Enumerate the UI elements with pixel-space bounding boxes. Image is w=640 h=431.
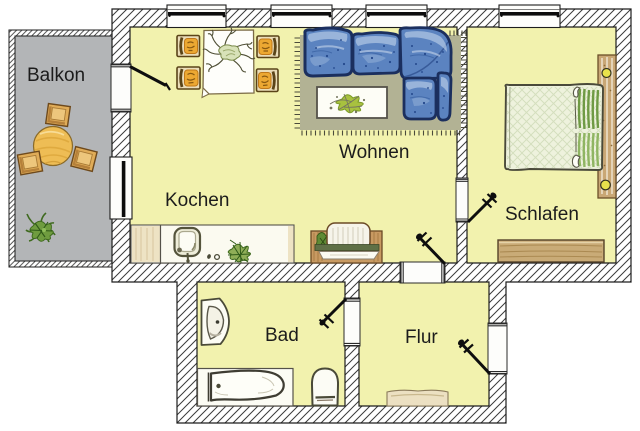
svg-text:Wohnen: Wohnen (339, 142, 409, 163)
svg-text:Kochen: Kochen (165, 190, 229, 211)
svg-text:Bad: Bad (265, 325, 299, 346)
svg-text:Balkon: Balkon (27, 65, 85, 86)
svg-text:Flur: Flur (405, 327, 438, 348)
svg-text:Schlafen: Schlafen (505, 204, 579, 225)
